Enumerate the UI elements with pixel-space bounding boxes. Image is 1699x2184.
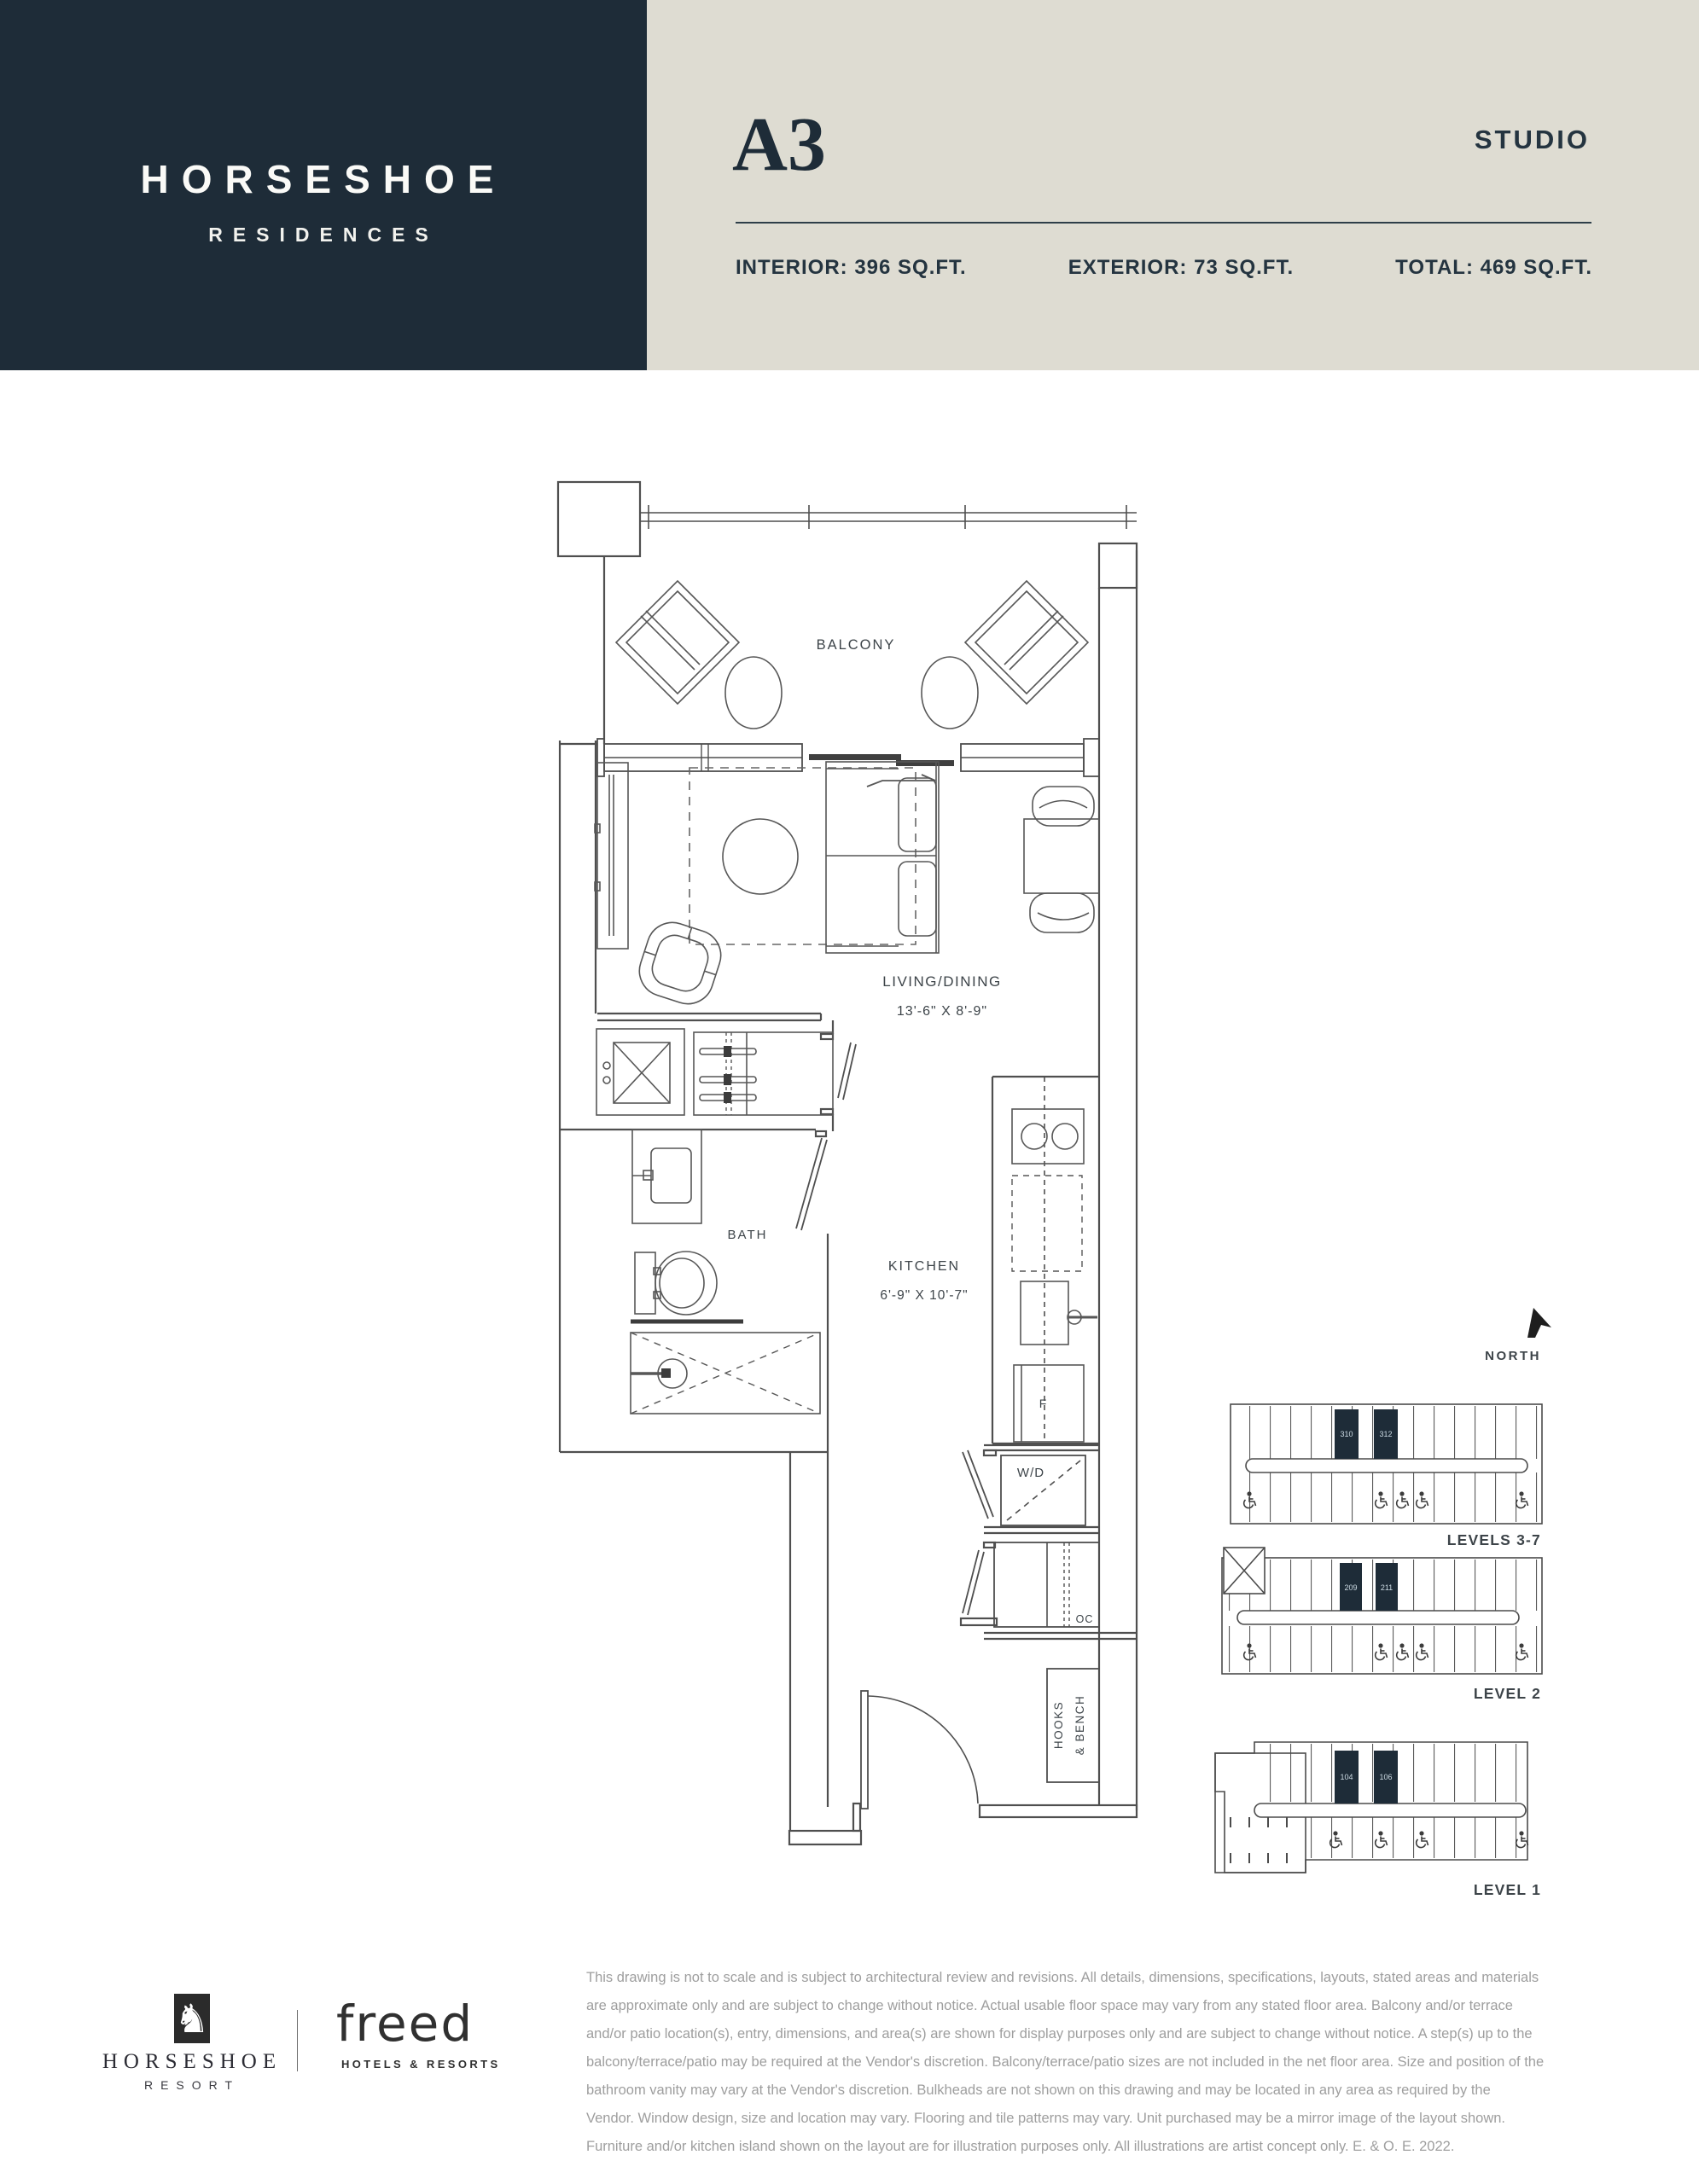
shower xyxy=(631,1333,820,1414)
cooktop xyxy=(1012,1109,1084,1164)
north-indicator: NORTH xyxy=(1485,1308,1551,1363)
fridge xyxy=(1014,1365,1084,1442)
resort-logo-name: HORSESHOE xyxy=(81,2050,303,2074)
hooks-label-1: HOOKS xyxy=(1052,1701,1065,1749)
north-arrow-icon xyxy=(1527,1308,1551,1338)
disclaimer-line: Vendor. Window design, size and location… xyxy=(586,2105,1593,2133)
balcony-chair-right xyxy=(965,581,1088,704)
floorplan-drawing: BALCONY LIVING/DINING 13'-6" X 8'-9" BAT… xyxy=(0,0,1699,2184)
horseshoe-resort-emblem: ♞ xyxy=(174,1994,210,2043)
keyplan-label: LEVELS 3-7 xyxy=(1447,1531,1541,1548)
logo-divider xyxy=(297,2010,298,2071)
disclaimer-line: balcony/terrace/patio may be required at… xyxy=(586,2048,1593,2077)
keyplan-levels-3-7: 310 312 LEVELS 3-7 xyxy=(1231,1404,1542,1548)
legal-disclaimer: This drawing is not to scale and is subj… xyxy=(586,1964,1593,2161)
disclaimer-line: and/or patio location(s), entry, dimensi… xyxy=(586,2020,1593,2048)
wd-label: W/D xyxy=(1017,1466,1044,1480)
bath-vanity xyxy=(632,1130,701,1223)
unit-number: 104 xyxy=(1340,1773,1353,1781)
floorplan-sheet: HORSESHOE RESIDENCES A3 STUDIO INTERIOR:… xyxy=(0,0,1699,2184)
unit-number: 310 xyxy=(1340,1430,1353,1438)
bath-label: BATH xyxy=(728,1228,768,1242)
oc-label: OC xyxy=(1076,1613,1094,1625)
lounge-chair xyxy=(633,916,728,1011)
north-label: NORTH xyxy=(1485,1349,1541,1363)
horse-icon: ♞ xyxy=(174,1999,209,2038)
balcony-label: BALCONY xyxy=(817,637,896,653)
disclaimer-line: are approximate only and are subject to … xyxy=(586,1992,1593,2020)
balcony-chair-left xyxy=(616,581,739,704)
unit-number: 211 xyxy=(1381,1583,1393,1592)
keyplan-label: LEVEL 1 xyxy=(1474,1881,1541,1898)
disclaimer-line: bathroom vanity may vary at the Vendor's… xyxy=(586,2077,1593,2105)
kitchen-label: KITCHEN xyxy=(888,1259,960,1274)
furniture xyxy=(595,581,1099,1442)
kitchen-dims: 6'-9" X 10'-7" xyxy=(880,1288,968,1303)
dining-set xyxy=(1024,787,1099,932)
living-dims: 13'-6" X 8'-9" xyxy=(897,1004,987,1019)
kitchen-sink xyxy=(1021,1281,1097,1345)
plan-labels: BALCONY LIVING/DINING 13'-6" X 8'-9" BAT… xyxy=(728,637,1094,1755)
fridge-label: F xyxy=(1039,1397,1047,1410)
utility-closet xyxy=(596,1029,684,1115)
unit-number: 312 xyxy=(1379,1430,1392,1438)
toilet xyxy=(635,1252,717,1315)
disclaimer-line: This drawing is not to scale and is subj… xyxy=(586,1964,1593,1992)
hooks-label-2: & BENCH xyxy=(1074,1695,1086,1756)
balcony-table-right xyxy=(922,657,978,729)
living-label: LIVING/DINING xyxy=(882,973,1001,990)
freed-logo: freed xyxy=(336,1995,474,2053)
keyplan-label: LEVEL 2 xyxy=(1474,1685,1541,1702)
coffee-table xyxy=(723,819,798,894)
resort-logo-subtitle: RESORT xyxy=(81,2078,303,2092)
dishwasher xyxy=(1012,1176,1082,1271)
sliding-door xyxy=(809,754,954,787)
disclaimer-line: Furniture and/or kitchen island shown on… xyxy=(586,2133,1593,2161)
sofa xyxy=(826,762,939,953)
freed-logo-subtitle: HOTELS & RESORTS xyxy=(341,2058,501,2071)
unit-number: 209 xyxy=(1344,1583,1357,1592)
unit-number: 106 xyxy=(1379,1773,1392,1781)
keyplan-level-2: 209 211 LEVEL 2 xyxy=(1222,1548,1542,1702)
balcony-table-left xyxy=(725,657,782,729)
keyplan-level-1: 104 106 LEVEL 1 xyxy=(1215,1742,1541,1898)
tv-unit xyxy=(595,763,628,949)
wardrobe-closet xyxy=(694,1032,833,1115)
